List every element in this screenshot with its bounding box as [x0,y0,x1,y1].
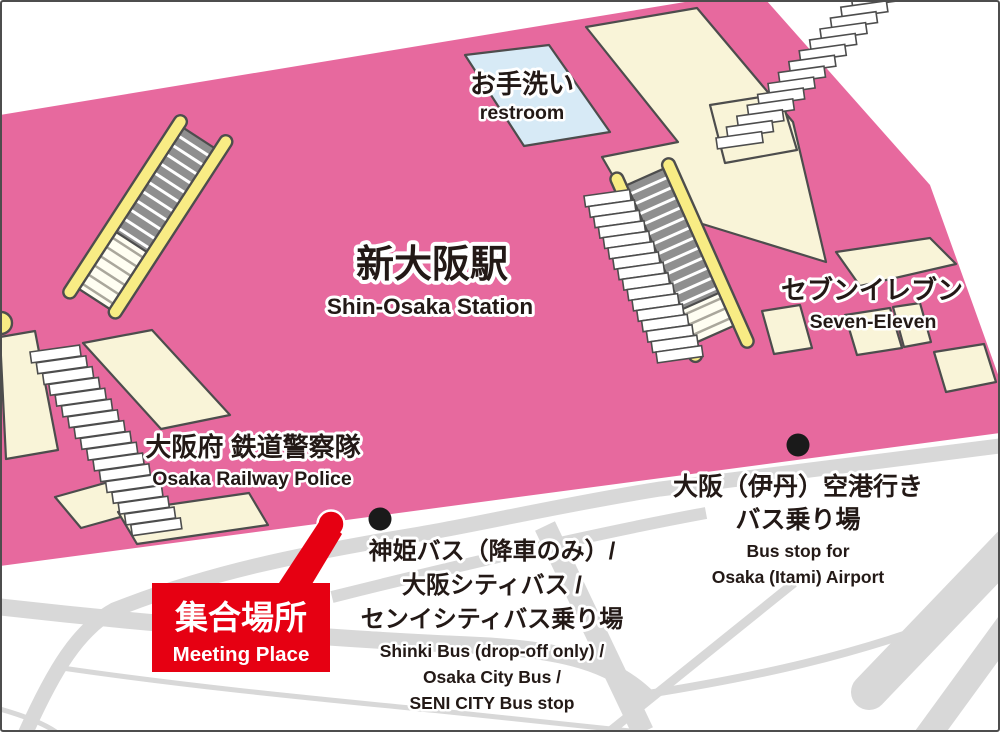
itami-bus-en-line2: Osaka (Itami) Airport [712,567,885,587]
road-cross-b [609,583,794,732]
shinki-bus-en-line3: SENI CITY Bus stop [410,693,575,713]
railway-police-label-jp: 大阪府 鉄道警察隊 [145,432,361,462]
itami-bus-stop-dot [787,434,810,457]
seven-eleven-label-en: Seven-Eleven [810,311,937,333]
label-shinki-bus-stop: 神姫バス（降車のみ）/ 大阪シティバス / センイシティバス乗り場 Shinki… [361,537,624,713]
shinki-bus-jp-line2: 大阪シティバス / [402,572,582,599]
itami-bus-en-line1: Bus stop for [746,541,849,561]
meeting-place-label-en: Meeting Place [173,643,310,666]
label-itami-bus-stop: 大阪（伊丹）空港行き バス乗り場 Bus stop for Osaka (Ita… [673,472,923,587]
right-edge-block [934,344,996,392]
label-restroom: お手洗い restroom [470,69,574,124]
railway-police-label-en: Osaka Railway Police [152,468,352,490]
map-canvas: お手洗い restroom 新大阪駅 Shin-Osaka Station セブ… [0,0,1000,732]
shinki-bus-en-line2: Osaka City Bus / [423,667,561,687]
station-title-en: Shin-Osaka Station [327,294,533,319]
itami-bus-jp-line1: 大阪（伊丹）空港行き [673,472,923,501]
restroom-label-en: restroom [480,102,565,124]
restroom-label-jp: お手洗い [470,69,574,99]
seven-eleven-label-jp: セブンイレブン [781,275,963,305]
label-railway-police: 大阪府 鉄道警察隊 Osaka Railway Police [145,432,361,490]
label-station: 新大阪駅 Shin-Osaka Station [327,244,533,319]
itami-bus-jp-line2: バス乗り場 [735,506,860,534]
station-title-jp: 新大阪駅 [356,244,508,286]
shinki-bus-jp-line1: 神姫バス（降車のみ）/ [369,537,616,565]
shinki-bus-jp-line3: センイシティバス乗り場 [361,606,624,633]
shinki-bus-en-line1: Shinki Bus (drop-off only) / [380,641,605,661]
meeting-place-label-jp: 集合場所 [174,599,307,636]
shinki-bus-stop-dot [369,508,392,531]
station-map: お手洗い restroom 新大阪駅 Shin-Osaka Station セブ… [0,0,1000,732]
